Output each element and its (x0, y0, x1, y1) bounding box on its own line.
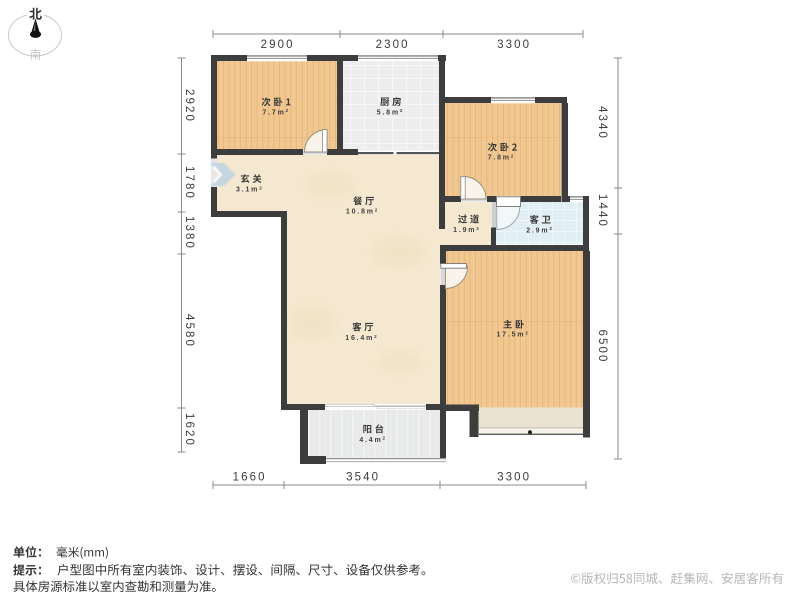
svg-text:3300: 3300 (497, 39, 531, 51)
svg-text:17.5m2: 17.5m2 (496, 330, 529, 338)
svg-text:3540: 3540 (346, 471, 380, 483)
svg-text:1660: 1660 (233, 471, 267, 483)
svg-text:2920: 2920 (183, 89, 195, 123)
svg-text:16.4m2: 16.4m2 (345, 334, 378, 342)
svg-text:1440: 1440 (596, 194, 608, 228)
svg-text:4580: 4580 (183, 314, 195, 348)
svg-text:1780: 1780 (183, 166, 195, 200)
svg-text:3300: 3300 (497, 471, 531, 483)
svg-text:10.8m2: 10.8m2 (346, 207, 379, 215)
svg-text:6500: 6500 (596, 330, 608, 364)
svg-text:1380: 1380 (183, 216, 195, 250)
svg-text:4340: 4340 (596, 106, 608, 140)
svg-text:2300: 2300 (376, 39, 410, 51)
svg-text:2900: 2900 (261, 39, 295, 51)
svg-text:1620: 1620 (183, 413, 195, 447)
